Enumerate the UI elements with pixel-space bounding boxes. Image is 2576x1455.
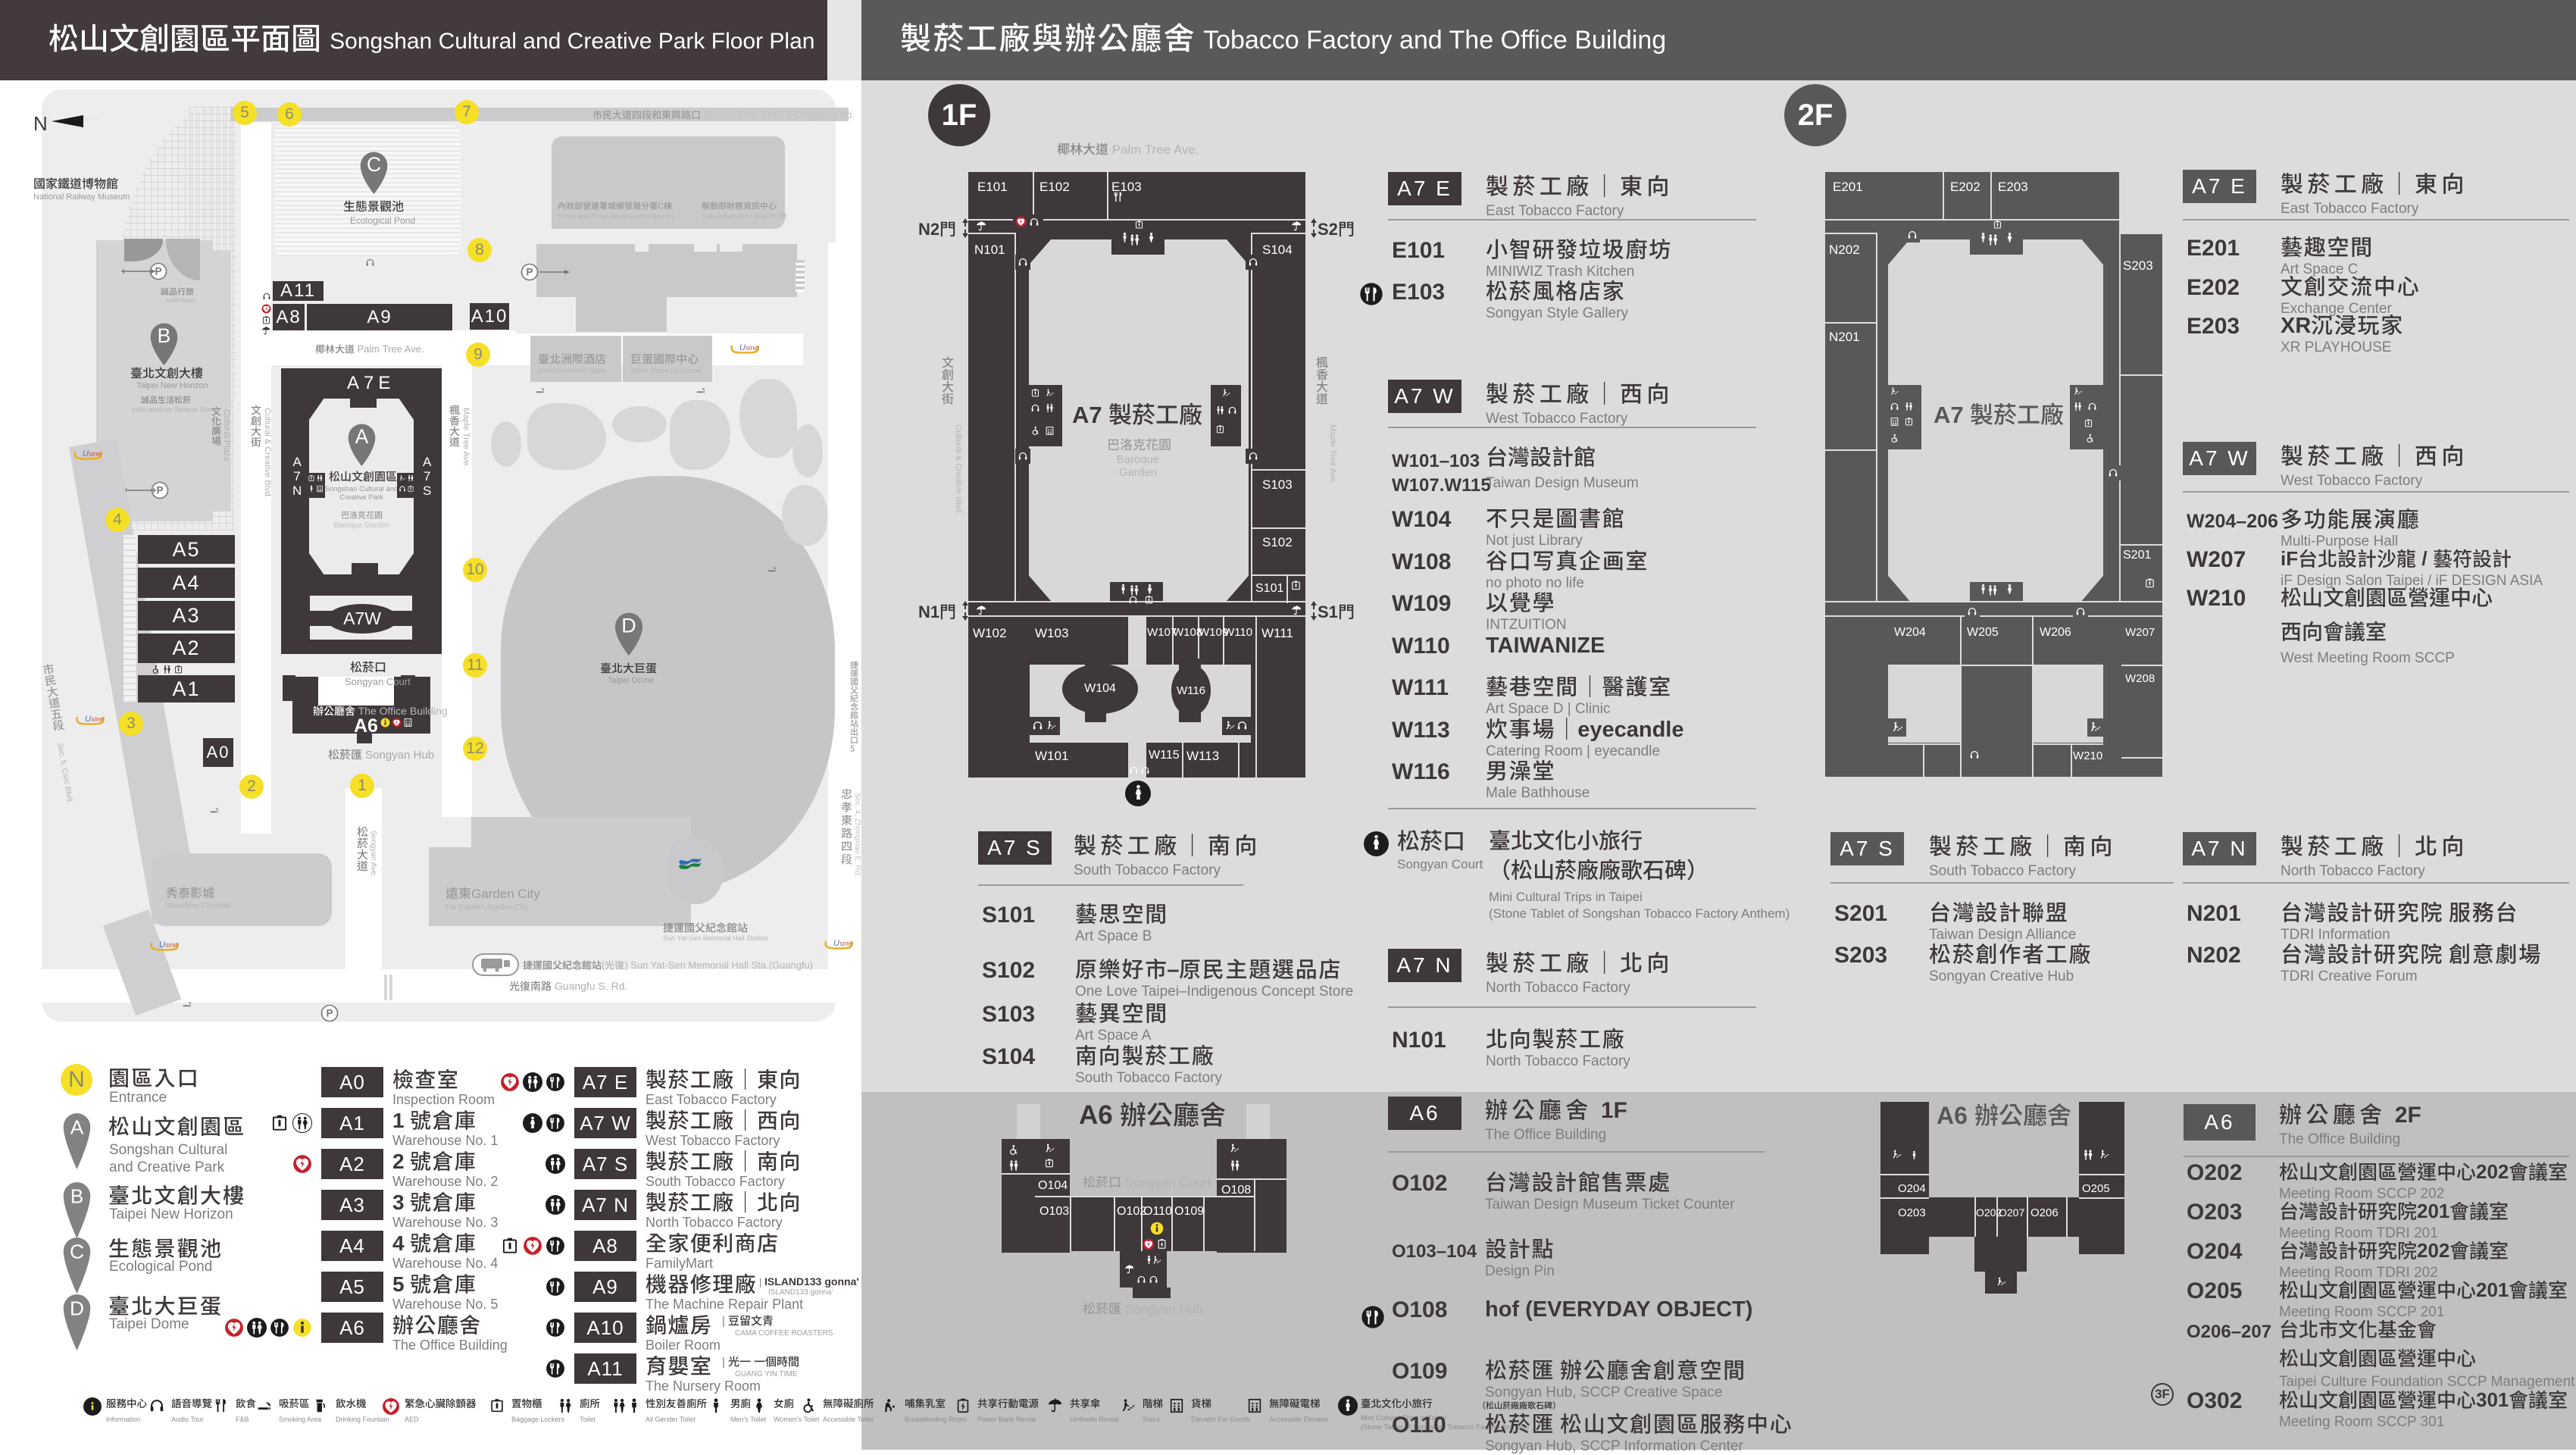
svg-text:B: B (158, 324, 171, 347)
svg-text:B: B (70, 1184, 84, 1207)
svg-text:U: U (83, 449, 89, 458)
svg-text:P: P (526, 267, 533, 278)
svg-text:sine: sine (91, 715, 104, 723)
svg-text:C: C (70, 1240, 84, 1263)
svg-text:sine: sine (746, 344, 758, 352)
svg-text:D: D (70, 1297, 84, 1319)
svg-text:U: U (85, 715, 91, 724)
svg-text:P: P (326, 1008, 333, 1019)
svg-text:U: U (159, 940, 165, 950)
svg-text:U: U (833, 939, 839, 948)
svg-text:sine: sine (839, 940, 852, 947)
svg-text:sine: sine (165, 941, 178, 949)
svg-text:A: A (355, 425, 369, 448)
svg-text:A: A (70, 1115, 84, 1138)
svg-text:D: D (621, 614, 636, 637)
svg-text:P: P (156, 485, 163, 496)
svg-text:C: C (367, 153, 381, 176)
svg-text:sine: sine (89, 450, 102, 458)
svg-text:U: U (739, 343, 746, 352)
